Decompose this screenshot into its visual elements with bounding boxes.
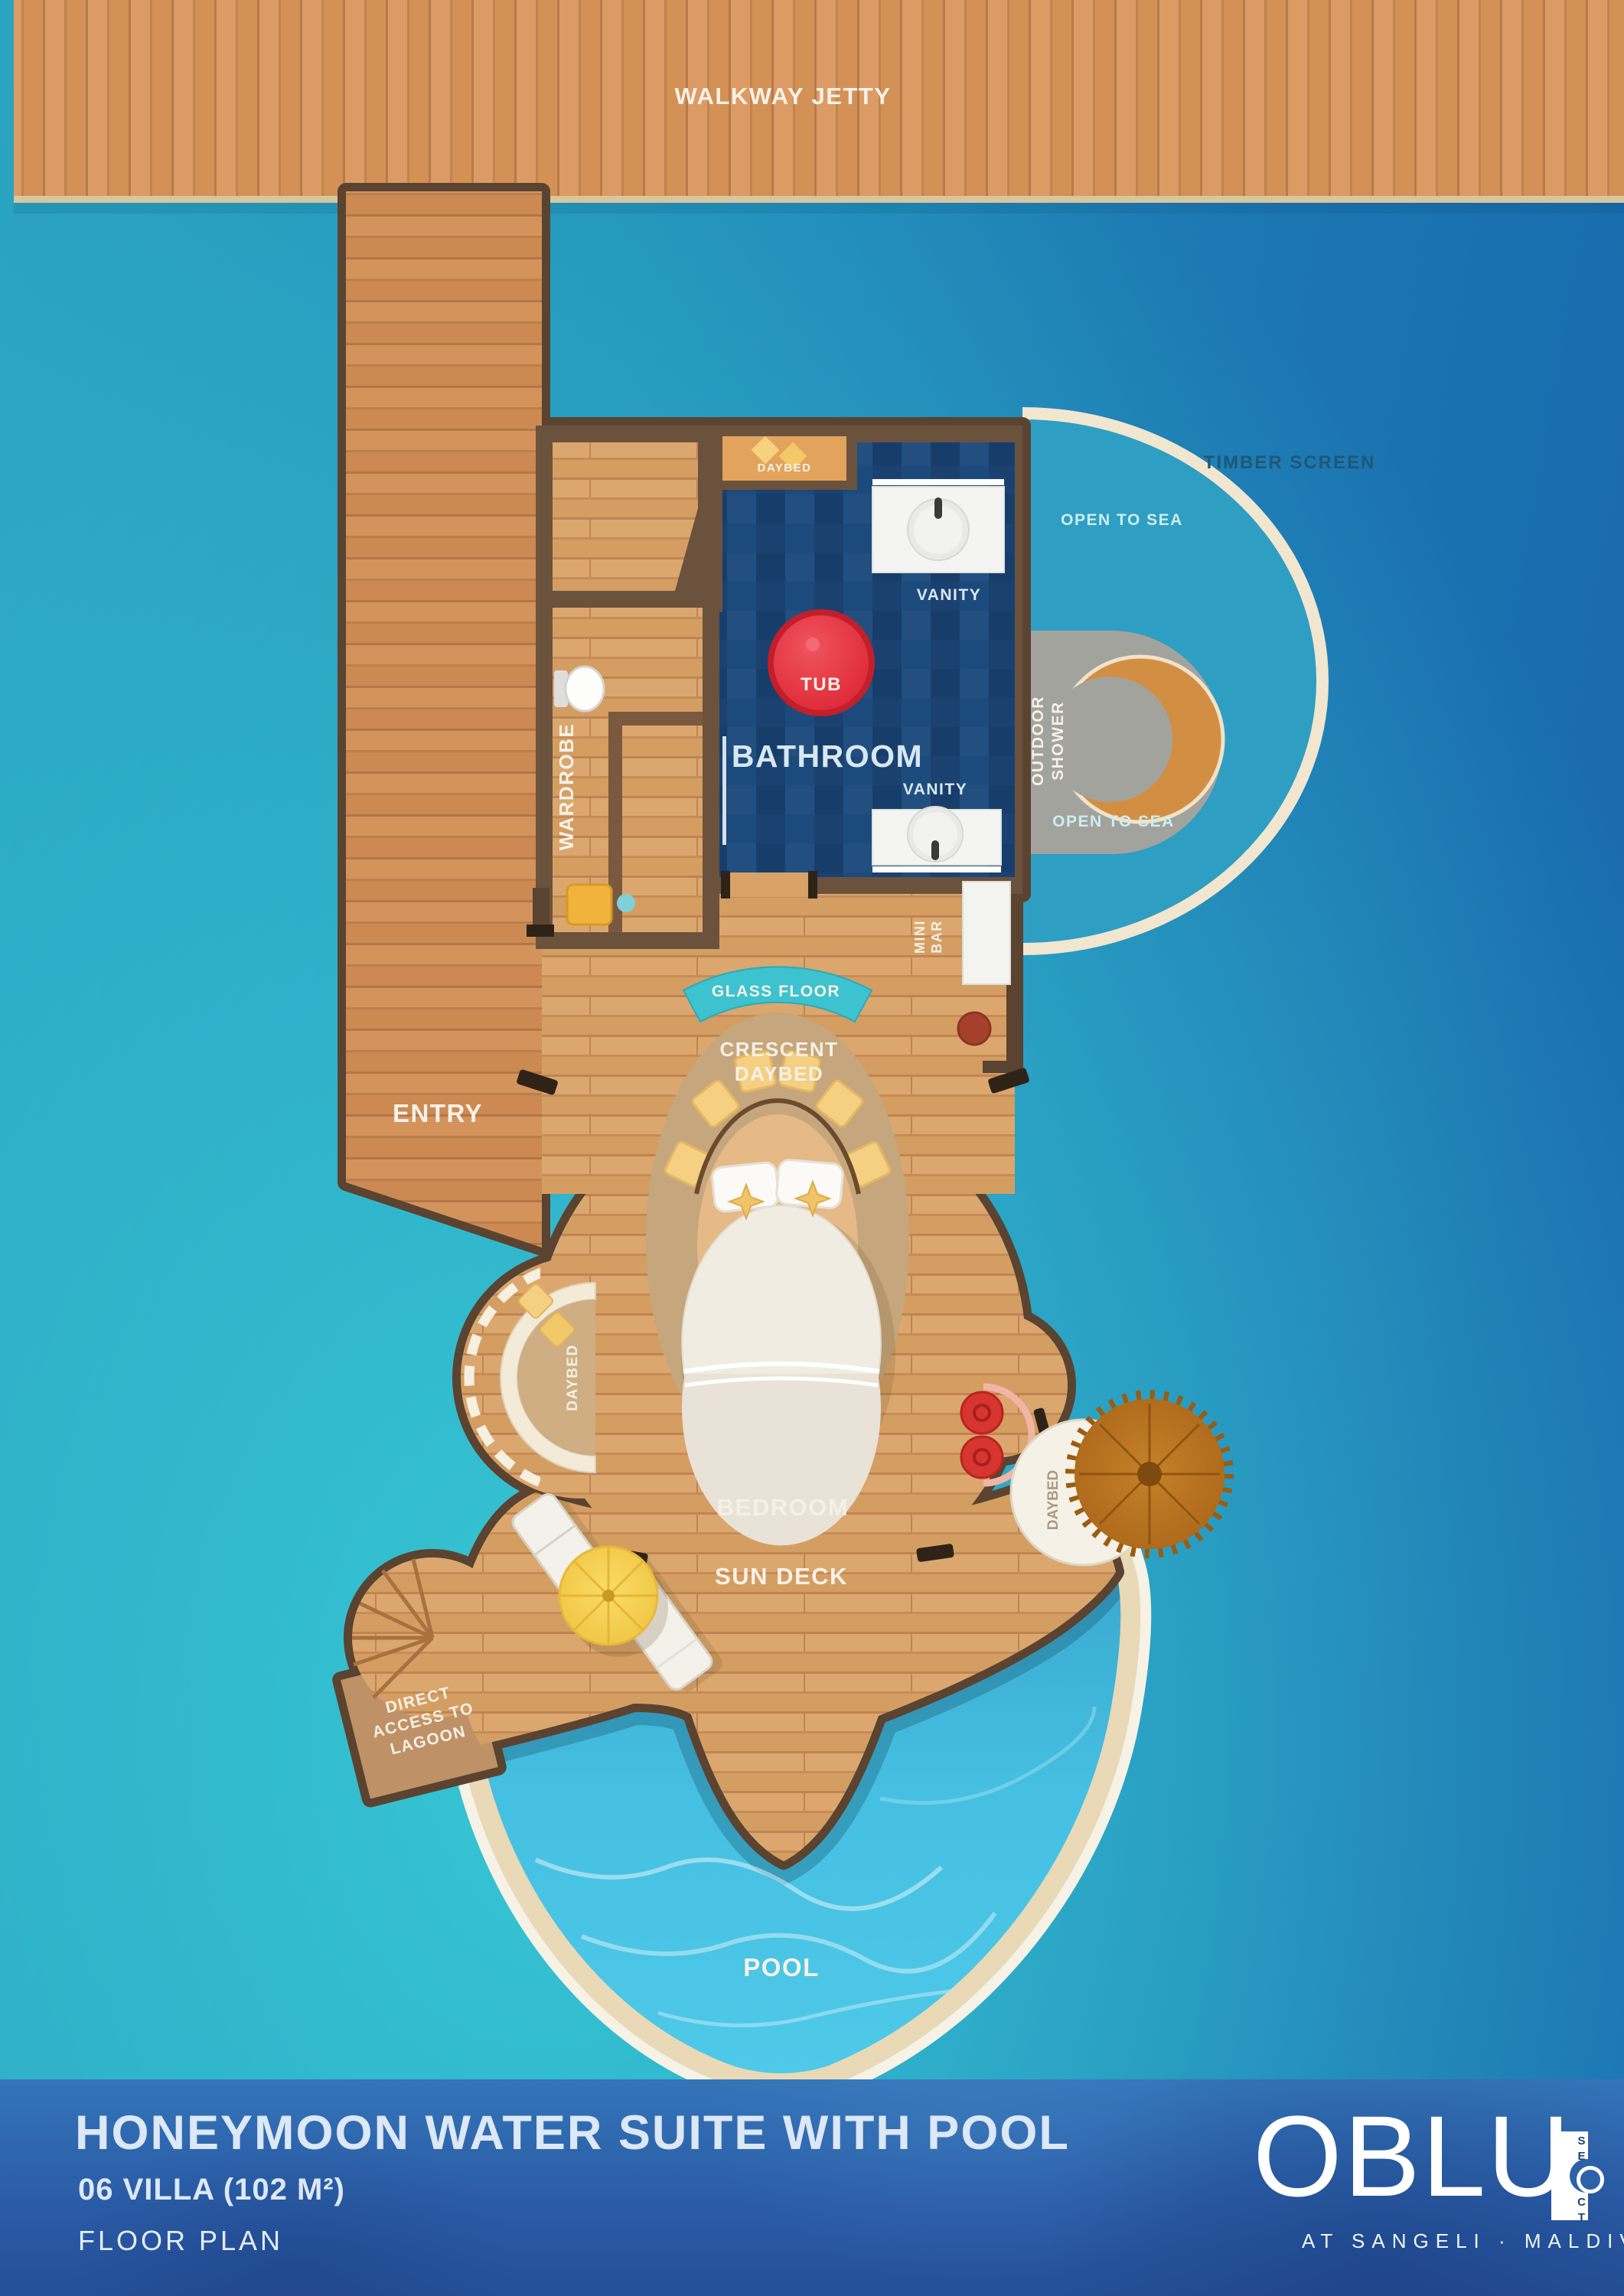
mini-bar-label-2: BAR [929, 920, 944, 954]
bedroom-label: BEDROOM [717, 1494, 849, 1521]
shower-divider [722, 736, 726, 845]
brand-name: OBLU [1253, 2095, 1571, 2217]
vanity-bottom-label: VANITY [903, 781, 967, 798]
vanity-top-label: VANITY [917, 586, 981, 604]
bathroom-label: BATHROOM [732, 739, 923, 774]
brand-select-ring-icon [1577, 2166, 1604, 2193]
brand-logo: OBLU SELECT AT SANGELI · MALDIVES [1253, 2079, 1620, 2296]
brand-location: AT SANGELI · MALDIVES [1302, 2229, 1624, 2253]
open-to-sea-bottom-label: OPEN TO SEA [1052, 813, 1175, 830]
floor-plan-label: FLOOR PLAN [78, 2225, 283, 2257]
glass-floor-label: GLASS FLOOR [712, 983, 840, 1000]
daybed-west-label: DAYBED [565, 1344, 581, 1411]
walkway-jetty-label: WALKWAY JETTY [674, 83, 891, 109]
bathroom [536, 426, 1015, 949]
wardrobe-label: WARDROBE [555, 723, 578, 851]
sun-deck-label: SUN DECK [715, 1563, 848, 1590]
crescent-daybed-label-1: CRESCENT [719, 1038, 838, 1061]
toilet [554, 667, 604, 711]
page-title: HONEYMOON WATER SUITE WITH POOL [75, 2105, 1070, 2161]
footer-panel: HONEYMOON WATER SUITE WITH POOL 06 VILLA… [0, 2079, 1624, 2296]
luggage-stool [567, 885, 611, 925]
bath-daybed-label: DAYBED [758, 461, 812, 475]
open-to-sea-top-label: OPEN TO SEA [1061, 511, 1183, 529]
pouf [958, 1013, 990, 1045]
tub [771, 612, 872, 713]
mini-bar-label-1: MINI [912, 920, 928, 954]
vase [617, 894, 635, 912]
vanity-top-splash [872, 479, 1004, 485]
floor-plan-page: DAYBED WALKWAY JETTY ENTRY WARDROBE DAYB… [0, 0, 1624, 2296]
villa-size: 06 VILLA (102 M²) [78, 2173, 345, 2207]
outdoor-shower-label-1: OUTDOOR [1029, 696, 1047, 786]
pool-label: POOL [743, 1953, 820, 1981]
crescent-daybed-label-2: DAYBED [735, 1062, 823, 1085]
bath-wood-nook [553, 442, 698, 591]
outdoor-shower-label-2: SHOWER [1049, 701, 1067, 781]
mini-bar [963, 882, 1010, 984]
tub-label: TUB [801, 674, 842, 695]
entry-label: ENTRY [393, 1099, 483, 1127]
daybed-hanging-label: DAYBED [1045, 1470, 1061, 1531]
timber-screen-label: TIMBER SCREEN [1204, 452, 1376, 473]
floor-plan-canvas: DAYBED WALKWAY JETTY ENTRY WARDROBE DAYB… [0, 0, 1624, 2296]
